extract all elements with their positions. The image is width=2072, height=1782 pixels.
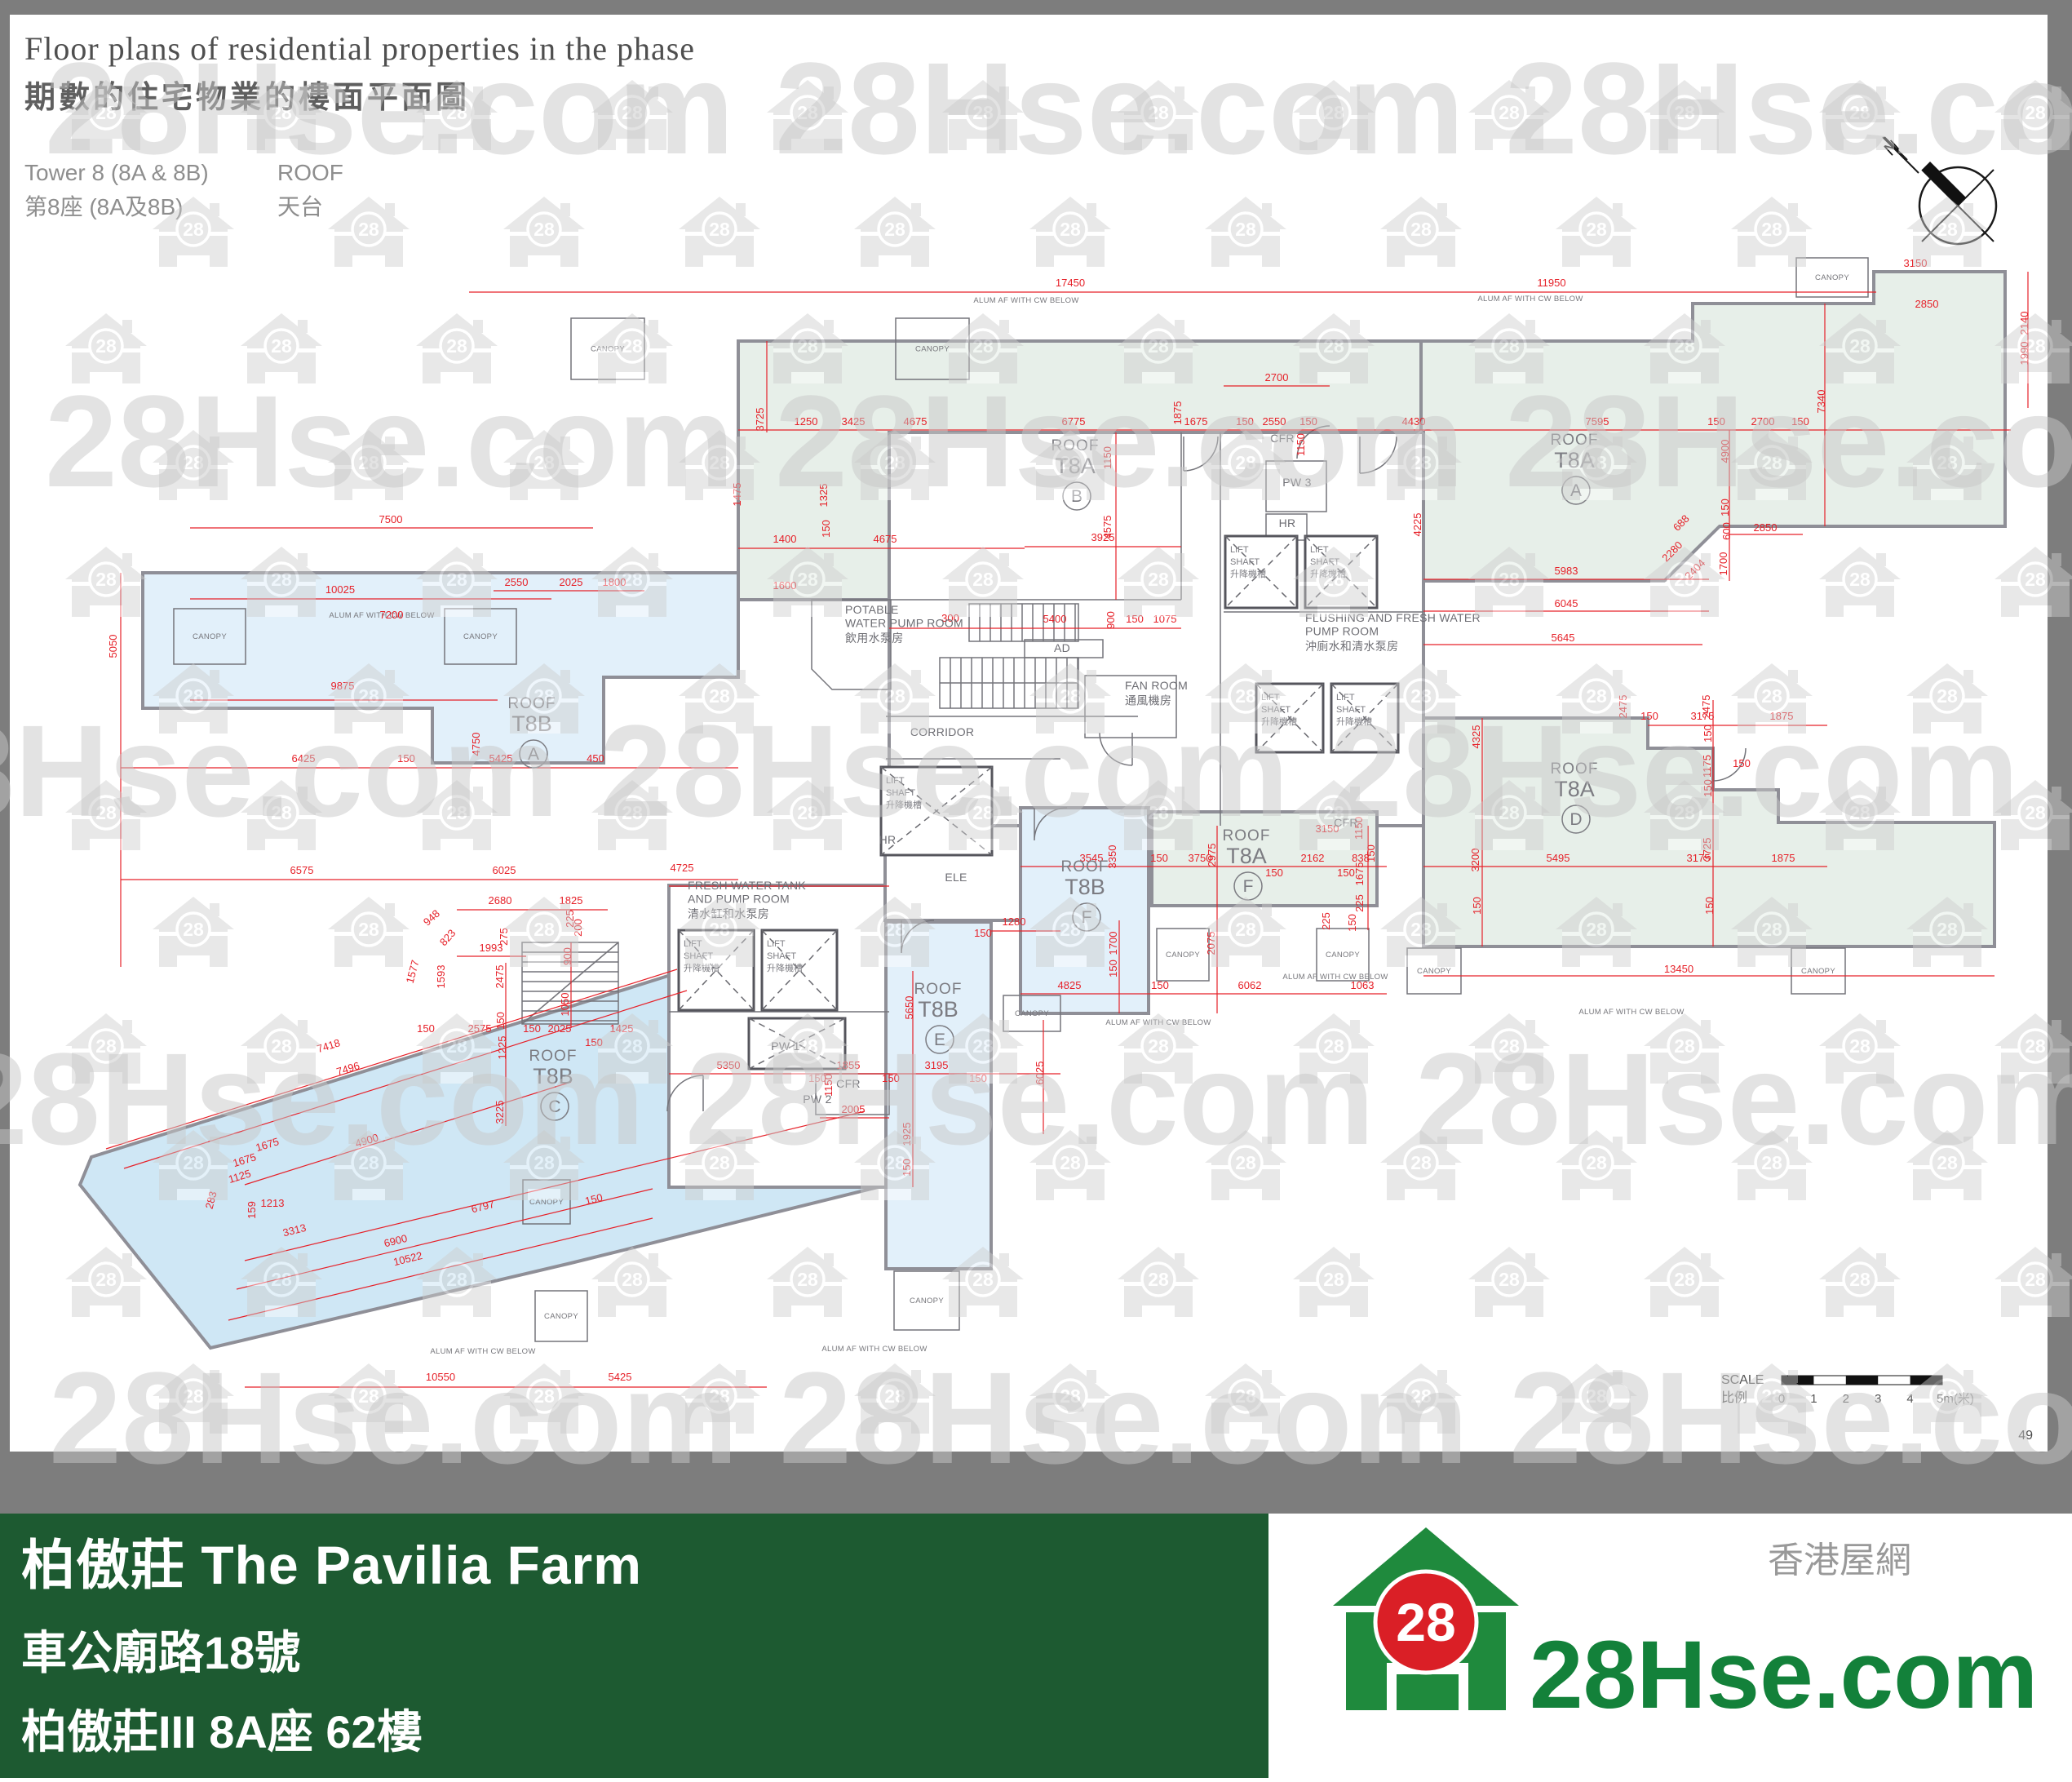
watermark-house-icon [591,547,673,617]
dim-label: 3925 [1091,531,1115,543]
dim-label: 2680 [489,894,512,907]
alum-note: ALUM AF WITH CW BELOW [1578,1008,1684,1017]
dim-label: 150 [1337,867,1355,879]
watermark-text: 28Hse.com [775,35,1464,181]
watermark-house-icon [1029,197,1111,267]
dim-label: 150 [1471,897,1483,915]
watermark-house-icon [1995,547,2072,617]
watermark-text: 28Hse.com [685,1026,1375,1172]
dim-label: 1280 [1003,915,1026,928]
dim-label: 1675 [1353,862,1366,886]
watermark-house-icon [1731,197,1813,267]
watermark-text: 28Hse.com [1505,368,2072,514]
facility-text: POTABLE [845,603,899,616]
brand-area: 香港屋網 28 28Hse.com [1268,1514,2072,1778]
property-unit: 柏傲莊III 8A座 62樓 [21,1696,1268,1762]
watermark-text: 28Hse.com [1330,698,2019,844]
dim-label: 3725 [754,408,766,432]
watermark-house-icon [1118,1247,1199,1317]
watermark-text: 28Hse.com [1415,1026,2072,1172]
dim-label: 6575 [290,864,314,876]
watermark-house-icon [503,897,585,967]
dim-label: 1400 [773,533,797,545]
facility-label: AD [1054,641,1070,654]
dim-label: 2162 [1301,852,1325,864]
dim-label: 7500 [379,513,403,525]
alum-note: ALUM AF WITH CW BELOW [1477,295,1583,304]
dim-label: 6062 [1238,979,1262,991]
dim-label: 5645 [1552,632,1575,644]
dim-label: 150 [1346,914,1358,932]
dim-label: 17450 [1056,277,1085,289]
dim-label: 4825 [1058,979,1082,991]
watermark-house-icon [416,547,498,617]
lift-shaft: LIFTSHAFT升降機槽 [762,930,837,1010]
dim-label: 275 [498,928,510,946]
canopy-label: CANOPY [193,632,227,641]
watermark-house-icon [1293,1247,1375,1317]
dim-label: 2850 [1754,521,1778,534]
watermark-text: 28Hse.com [1505,35,2072,181]
property-address: 車公廟路18號 [21,1616,1268,1682]
canopy: CANOPY [535,1291,587,1341]
watermark-text: 28Hse.com [45,368,734,514]
dim-label: 150 [1703,897,1716,915]
watermark-house-icon [1468,1247,1550,1317]
facility-text: FAN ROOM [1125,679,1188,692]
dim-label: 150 [1107,960,1119,977]
facility-label: ELE [945,871,967,884]
lift-shaft-label: 升降機槽 [767,962,803,973]
lift-shaft-label: SHAFT [1230,557,1260,567]
canopy-label: CANOPY [1815,273,1849,282]
lift-shaft-label: SHAFT [767,951,796,961]
alum-note: ALUM AF WITH CW BELOW [973,296,1078,305]
facility-label: HR [1279,516,1296,530]
watermark-layer: 28Hse.com28Hse.com28Hse.com28Hse.com28Hs… [0,35,2072,1491]
dim-label: 5400 [1043,613,1067,625]
room-letter: F [1243,877,1254,896]
watermark-house-icon [503,197,585,267]
watermark-house-icon [591,1247,673,1317]
dim-label: 1875 [1772,852,1795,864]
dim-label: 5050 [107,635,119,658]
watermark-house-icon [767,1247,848,1317]
canopy: CANOPY [1157,929,1209,981]
canopy-label: CANOPY [1326,951,1360,960]
watermark-house-icon [1556,197,1637,267]
facility-text: AD [1054,641,1070,654]
dim-label: 948 [421,907,442,929]
watermark-house-icon [1995,1247,2072,1317]
dim-label: 2975 [1206,844,1218,867]
dim-label: 10025 [325,583,355,596]
canopy-label: CANOPY [1015,1009,1049,1018]
canopy-label: CANOPY [1166,951,1200,960]
dim-label: 1577 [404,959,422,985]
watermark-house-icon [328,897,410,967]
dim-label: 150 [820,520,832,538]
property-name: 柏傲莊 The Pavilia Farm [21,1522,1268,1600]
house-logo-icon: 28 [1333,1527,1519,1710]
floor-plan: 28 LIFTSHAFT升降機槽LIFTSHAFT升降機槽LIFTSHAFT升降… [0,0,2072,1778]
watermark-text: 28Hse.com [779,1345,1468,1491]
watermark-text: 28Hse.com [0,1026,644,1172]
dim-label: 6045 [1555,597,1578,610]
canopy-label: CANOPY [463,632,498,641]
watermark-text: 28Hse.com [45,35,734,181]
canopy: CANOPY [1796,258,1868,297]
room-label-line2: T8B [1065,875,1105,899]
facility-text: HR [1279,516,1296,530]
dim-label: 1593 [435,965,447,989]
room-label-line2: T8A [1226,844,1267,868]
dim-label: 150 [1150,852,1168,864]
facility-text: PUMP ROOM [1305,625,1379,638]
watermark-text: 28Hse.com [0,698,559,844]
watermark-text: 28Hse.com [1509,1345,2072,1491]
dim-label: 11950 [1537,277,1565,289]
dim-label: 2850 [1915,298,1939,310]
dim-label: 225 [1353,894,1366,912]
dim-label: 1700 [1717,552,1729,576]
watermark-house-icon [153,897,234,967]
dim-label: 225 [1320,912,1332,930]
brand-logo: 香港屋網 28 28Hse.com [1268,1514,2072,1778]
dim-label: 5495 [1547,852,1570,864]
watermark-text: 28Hse.com [600,698,1289,844]
dim-label: 13450 [1664,963,1693,975]
watermark-text: 28Hse.com [49,1345,738,1491]
dim-label: 3200 [1469,849,1481,872]
dim-label: 5650 [903,996,915,1020]
brand-text: 28Hse.com [1530,1621,2038,1729]
watermark-house-icon [1205,197,1286,267]
watermark-house-icon [1819,547,1901,617]
watermark-house-icon [65,547,147,617]
dim-label: 2025 [560,576,583,588]
watermark-house-icon [1380,197,1462,267]
watermark-house-icon [1644,1247,1725,1317]
facility-text-zh: 沖廁水和清水泵房 [1305,640,1398,653]
watermark-text: 28Hse.com [775,368,1464,514]
lift-shaft-label: 升降機槽 [1230,568,1266,579]
lift-shaft: LIFTSHAFT升降機槽 [1225,536,1297,608]
dim-label: 159 [246,1201,258,1219]
dim-label: 6025 [493,864,516,876]
facility-text-zh: 飲用水泵房 [845,632,904,645]
brand-badge: 28 [1396,1592,1455,1652]
watermark-house-icon [679,197,760,267]
facility-text: WATER PUMP ROOM [845,617,963,630]
dim-label: 2475 [494,965,506,989]
watermark-house-icon [153,197,234,267]
dim-label: 1213 [261,1197,285,1209]
dim-label: 900 [1105,611,1117,629]
dim-label: 7200 [380,609,404,621]
watermark-house-icon [65,1247,147,1317]
facility-text: ELE [945,871,967,884]
watermark-house-icon [854,197,936,267]
room-label-line2: T8B [918,997,959,1022]
canopy-label: CANOPY [544,1312,578,1321]
dim-label: 4225 [1411,513,1423,537]
room-label-line1: ROOF [914,981,963,998]
dim-label: 1050 [559,993,571,1017]
watermark-house-icon [241,547,322,617]
canopy-label: CANOPY [915,345,950,354]
room-label-line1: ROOF [1061,858,1109,875]
dim-label: 4675 [874,533,897,545]
dim-label: 600 [1720,522,1733,540]
dim-label: 1700 [1107,932,1119,955]
dim-label: 2550 [505,576,529,588]
lift-shaft-label: LIFT [1230,545,1249,555]
dim-label: 4725 [671,862,694,874]
dim-label: 1063 [1351,979,1375,991]
dim-label: 150 [1151,979,1169,991]
watermark-house-icon [1819,1247,1901,1317]
canopy-label: CANOPY [1801,967,1835,976]
dim-label: 150 [974,927,992,939]
brand-tagline: 香港屋網 [1768,1540,1911,1580]
dim-label: 823 [437,927,458,948]
canopy-label: CANOPY [1417,967,1451,976]
watermark-house-icon [328,197,410,267]
dim-label: 150 [1265,867,1283,879]
dim-label: 5983 [1555,565,1578,577]
lift-shaft-label: LIFT [767,939,786,949]
property-banner: 柏傲莊 The Pavilia Farm 車公廟路18號 柏傲莊III 8A座 … [0,1514,1268,1778]
canopy-label: CANOPY [910,1297,944,1305]
facility-text: FRESH WATER TANK [688,879,806,892]
